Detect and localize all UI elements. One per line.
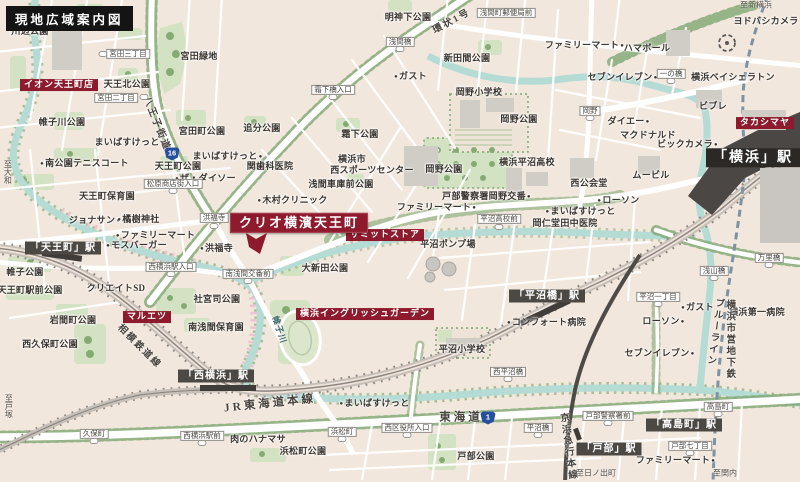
map-label-place: 西久保町公園 [22, 340, 78, 350]
map-label-shop: ジョナサン● [69, 216, 121, 226]
map-label-place: 霜下公園 [341, 130, 378, 140]
map-label-shop: ●木村クリニック [256, 196, 327, 206]
map-label-place: 横浜第一病院 [729, 308, 785, 318]
map-label-place: 天王町公園 [155, 162, 202, 172]
map-label-place: 天王北公園 [104, 80, 151, 90]
map-label-intersection: 万里橋 [755, 253, 784, 263]
map-label-intersection: 南浅間交番前 [223, 269, 274, 279]
map-label-place: 浜松町公園 [280, 447, 327, 457]
map-label-intersection: 浅間橋 [386, 37, 415, 47]
map-label-intersection: 松原商店街入口 [144, 179, 203, 189]
map-label-place: クリエイトSD [87, 284, 146, 294]
map-label-intersection: 平沼橋 [524, 423, 553, 433]
map-label-intersection: 霜下橋入口 [311, 85, 355, 95]
shop-dot-marker: ● [713, 142, 719, 148]
map-label-shop: ファミリーマート● [397, 203, 477, 213]
area-map: 川辺公園宮田三丁目宮田緑地イオン天王町店天王北公園宮田二丁目帷子川公園宮田町公園… [0, 0, 800, 480]
map-label-intersection: 浅間町郵便局前 [477, 8, 536, 18]
map-label-place: 横浜平沼高校 [499, 158, 555, 168]
map-label-shop: ●洪福寺 [199, 244, 233, 254]
map-label-place: 戸部公園 [457, 452, 494, 462]
map-label-intersection: 戸部警察署前 [583, 411, 634, 421]
map-label-shop: ●まいばすけっと [338, 399, 409, 409]
shop-dot-marker: ● [596, 198, 602, 204]
map-label-place: 平沼小学校 [439, 345, 486, 355]
map-label-intersection: 浜松町 [328, 427, 357, 437]
map-label-landmark-badge: マルエツ [123, 311, 171, 323]
map-label-shop: ●ローソン [596, 196, 639, 206]
map-label-place: ムービル [632, 171, 669, 181]
route-number-oval [210, 223, 219, 229]
map-label-road: 相模鉄道線 [115, 323, 163, 371]
map-label-place: 大新田公園 [302, 264, 349, 274]
map-label-station: 「戸部」駅 [577, 443, 642, 456]
map-label-place: 社宮司公園 [194, 295, 241, 305]
shop-dot-marker: ● [506, 320, 512, 326]
map-label-road: 京浜急行本線 [557, 412, 577, 482]
map-label-place: 岡野公園 [425, 165, 462, 175]
map-labels-layer: 川辺公園宮田三丁目宮田緑地イオン天王町店天王北公園宮田二丁目帷子川公園宮田町公園… [0, 0, 800, 480]
map-label-intersection: 戸部七丁目 [668, 441, 712, 451]
map-label-intersection: 高島町 [704, 402, 733, 412]
map-label-road: JR東海道本線 [223, 393, 316, 415]
shop-dot-marker: ● [39, 161, 45, 167]
map-label-shop: ●ガスト [393, 72, 427, 82]
map-label-place: 帷子川公園 [39, 118, 86, 128]
map-label-station: 「平沼橋」駅 [509, 290, 585, 303]
map-label-place: 岡仁堂田中医院 [532, 219, 597, 229]
shop-dot-marker: ● [645, 119, 651, 125]
map-label-shop: ●まいばすけっと [544, 207, 615, 217]
map-label-place: 岡野小学校 [456, 88, 503, 98]
map-label-shop: ファミリーマート● [636, 456, 716, 466]
route-number-oval [495, 224, 504, 230]
map-title-badge: 現地広域案内図 [6, 6, 133, 31]
map-label-station: 「高島町」駅 [646, 419, 722, 432]
route-number-shield: 16 [165, 148, 180, 161]
shop-dot-marker: ● [544, 209, 550, 215]
shop-dot-marker: ● [258, 154, 264, 160]
map-label-direction: 至関内 [713, 470, 737, 479]
map-label-place: ヨドバシカメラ [733, 17, 798, 27]
map-label-shop: 戸部警察署岡野交番● [442, 192, 532, 202]
shop-dot-marker: ● [710, 458, 716, 464]
map-label-intersection: 西横浜駅入口 [146, 262, 197, 272]
map-label-place: 岩間町公園 [50, 316, 97, 326]
map-label-road: 東海道 [439, 412, 483, 425]
shop-dot-marker: ● [338, 401, 344, 407]
map-label-place: 追分公園 [243, 124, 280, 134]
map-label-place: 新田間公園 [444, 54, 491, 64]
map-label-place: 西スポーツセンター [330, 166, 414, 176]
shop-dot-marker: ● [115, 233, 121, 239]
map-label-intersection: 西区役所入口 [382, 423, 433, 433]
map-label-place: ハマボール [624, 44, 671, 54]
map-label-place: 横浜ベイシェラトン [691, 73, 775, 83]
map-label-place: 宮田緑地 [180, 52, 217, 62]
map-label-station-yokohama: 「横浜」駅 [706, 148, 800, 167]
map-label-place: 明神下公園 [385, 13, 432, 23]
map-label-place: ビブレ [699, 102, 727, 112]
map-label-intersection: 西横浜駅前 [180, 431, 224, 441]
map-label-shop: ●コンフォート病院 [506, 318, 586, 328]
shop-dot-marker: ● [471, 205, 477, 211]
map-label-place: 横浜市 [338, 155, 366, 165]
map-label-place: 天王町駅前公園 [0, 286, 63, 296]
map-label-direction: 至大和 [3, 160, 12, 184]
shop-dot-marker: ● [526, 194, 532, 200]
shop-dot-marker: ● [680, 305, 686, 311]
property-name-badge: クリオ横濱天王町 [230, 213, 368, 233]
map-label-river: 帷子川 [270, 315, 288, 345]
map-label-place: 南浅間保育園 [188, 323, 244, 333]
map-label-intersection: 平沼一丁目 [636, 292, 680, 302]
map-label-landmark-badge: タカシマヤ [736, 117, 794, 129]
map-label-intersection: 浅山橋 [700, 266, 729, 276]
map-label-shop: ●モスバーガー [105, 241, 167, 251]
shop-dot-marker: ● [393, 74, 399, 80]
map-label-road: 横浜市営地下鉄 [724, 300, 734, 381]
map-label-intersection: 岡野 [580, 106, 601, 116]
map-label-station: 「西横浜」駅 [178, 370, 254, 383]
map-label-place: 西公会堂 [570, 179, 607, 189]
shop-dot-marker: ● [256, 198, 262, 204]
map-label-direction: 至新横浜 [740, 2, 772, 11]
map-label-place: 天王町保育園 [79, 192, 135, 202]
shop-dot-marker: ● [105, 243, 111, 249]
map-label-shop: ●橘樹神社 [116, 215, 159, 225]
map-label-intersection: 西平沼橋 [490, 367, 526, 377]
route-number-oval [140, 94, 149, 100]
shop-dot-marker: ● [690, 351, 696, 357]
map-label-station: 「天王町」駅 [25, 242, 101, 255]
map-label-direction: 至戸塚 [4, 394, 13, 418]
map-label-landmark-badge: イオン天王町店 [20, 79, 98, 91]
map-label-place: 関歯科医院 [247, 162, 294, 172]
shop-dot-marker: ● [199, 246, 205, 252]
map-label-shop: ●南公園テニスコート [39, 159, 129, 169]
map-label-landmark-badge: 横浜イングリッシュガーデン [296, 308, 434, 320]
map-label-intersection: 一の橋 [657, 69, 686, 79]
map-label-place: 浅間車庫前公園 [308, 180, 373, 190]
map-label-shop: まいばすけっと● [94, 138, 165, 148]
map-label-intersection: 宮田二丁目 [94, 93, 138, 103]
map-label-shop: セブンイレブン● [624, 349, 695, 359]
map-label-shop: ダイエー● [607, 117, 650, 127]
map-label-place: 岡野公園 [500, 115, 537, 125]
map-label-place: 肉のハナマサ [230, 435, 286, 445]
map-label-shop: セブンイレブン● [587, 73, 658, 83]
shop-dot-marker: ● [116, 217, 122, 223]
map-label-shop: ファミリーマート● [545, 41, 625, 51]
map-label-direction: 至日ノ出町 [576, 470, 616, 479]
map-label-intersection: 久保町 [80, 429, 109, 439]
map-label-shop: ローソン● [642, 317, 685, 327]
map-label-road: 環状1号 [431, 8, 472, 37]
map-label-place: 帷子公園 [6, 268, 43, 278]
map-label-intersection: 平沼高校前 [477, 214, 521, 224]
map-label-place: 平沼ポンプ場 [420, 240, 476, 250]
map-label-shop: ●ガスト [680, 303, 714, 313]
shop-dot-marker: ● [680, 319, 686, 325]
map-label-place: 宮田町公園 [179, 127, 226, 137]
map-label-intersection: 宮田三丁目 [106, 49, 150, 59]
map-label-intersection: 洪福寺 [200, 213, 229, 223]
